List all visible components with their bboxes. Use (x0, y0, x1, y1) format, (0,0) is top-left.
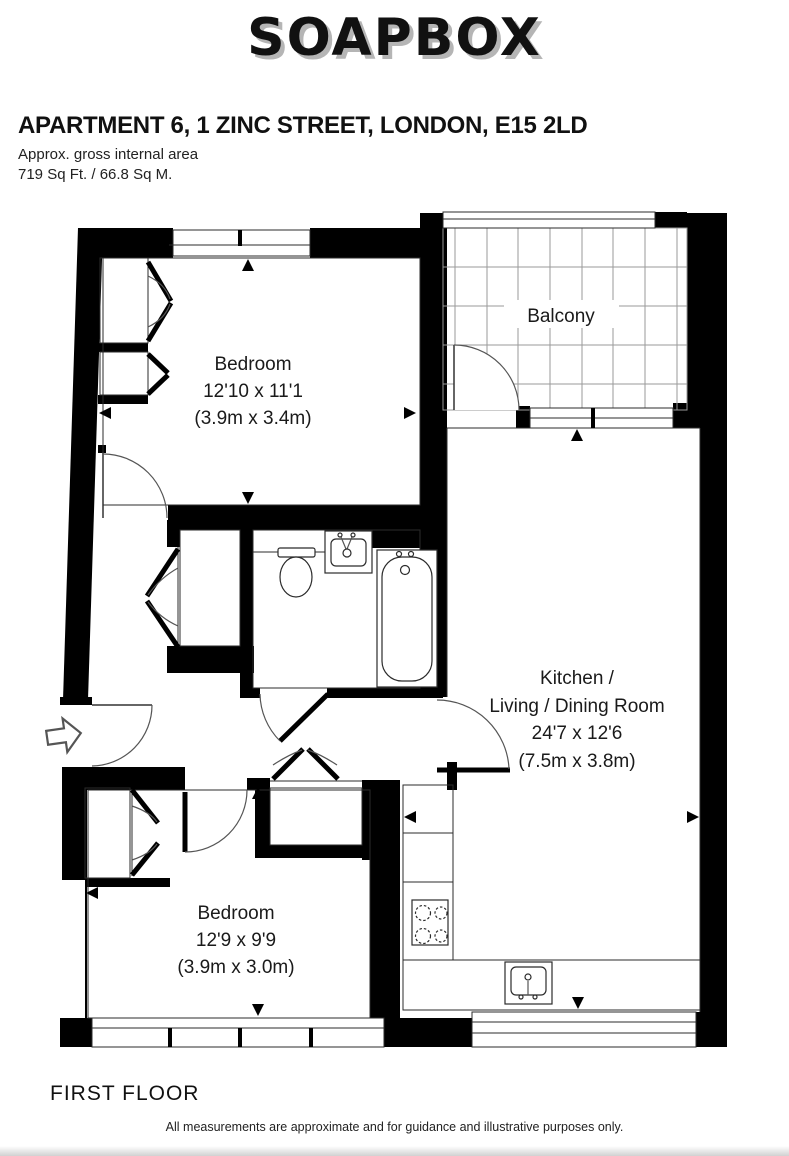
bathroom-fixtures (278, 531, 437, 687)
bathroom-door (260, 694, 328, 741)
balcony-door (454, 345, 519, 410)
hob-icon (412, 900, 448, 945)
kitchen-name-2: Living / Dining Room (489, 696, 664, 717)
balcony-name: Balcony (527, 306, 595, 327)
bedroom1-window (169, 230, 310, 256)
bedroom2-door (185, 790, 247, 852)
kitchen-window (472, 1012, 696, 1047)
bedroom2-window (92, 1018, 384, 1047)
entry-door (92, 705, 152, 766)
bathroom-sink-icon (325, 531, 372, 573)
toilet-icon (278, 548, 315, 597)
kitchen-name-1: Kitchen / (540, 668, 615, 689)
kitchen-imperial: 24'7 x 12'6 (532, 723, 623, 744)
kitchen-balcony-window (530, 408, 673, 428)
bedroom2-wardrobe-icon (85, 788, 158, 878)
bedroom2-metric: (3.9m x 3.0m) (177, 957, 294, 978)
bedroom2-imperial: 12'9 x 9'9 (196, 930, 276, 951)
bedroom1-metric: (3.9m x 3.4m) (194, 408, 311, 429)
bedroom2-label: Bedroom 12'9 x 9'9 (3.9m x 3.0m) (177, 903, 294, 978)
page-bottom-shadow (0, 1146, 789, 1156)
entry-arrow-icon (45, 716, 83, 754)
balcony-label: Balcony (504, 300, 619, 328)
floor-label: FIRST FLOOR (50, 1082, 199, 1106)
bathtub-icon (377, 550, 437, 687)
hall-closet-icon (147, 547, 178, 647)
bedroom1-label: Bedroom 12'10 x 11'1 (3.9m x 3.4m) (194, 354, 311, 429)
floor-plan: Bedroom 12'10 x 11'1 (3.9m x 3.4m) Balco… (0, 0, 789, 1156)
disclaimer-text: All measurements are approximate and for… (0, 1120, 789, 1134)
balcony-top-window (443, 212, 655, 228)
hall-cupboard-bifold-icon (270, 749, 362, 781)
kitchen-label: Kitchen / Living / Dining Room 24'7 x 12… (489, 668, 664, 772)
bedroom1-imperial: 12'10 x 11'1 (203, 381, 303, 402)
kitchen-sink-icon (505, 962, 552, 1004)
kitchen-fixtures (403, 785, 700, 1010)
bedroom1-wardrobe-icon (100, 258, 171, 395)
bedroom1-door (103, 452, 167, 518)
floorplan-page: SOAPBOX APARTMENT 6, 1 ZINC STREET, LOND… (0, 0, 789, 1156)
bedroom1-name: Bedroom (214, 354, 291, 375)
bedroom2-name: Bedroom (197, 903, 274, 924)
kitchen-metric: (7.5m x 3.8m) (518, 751, 635, 772)
